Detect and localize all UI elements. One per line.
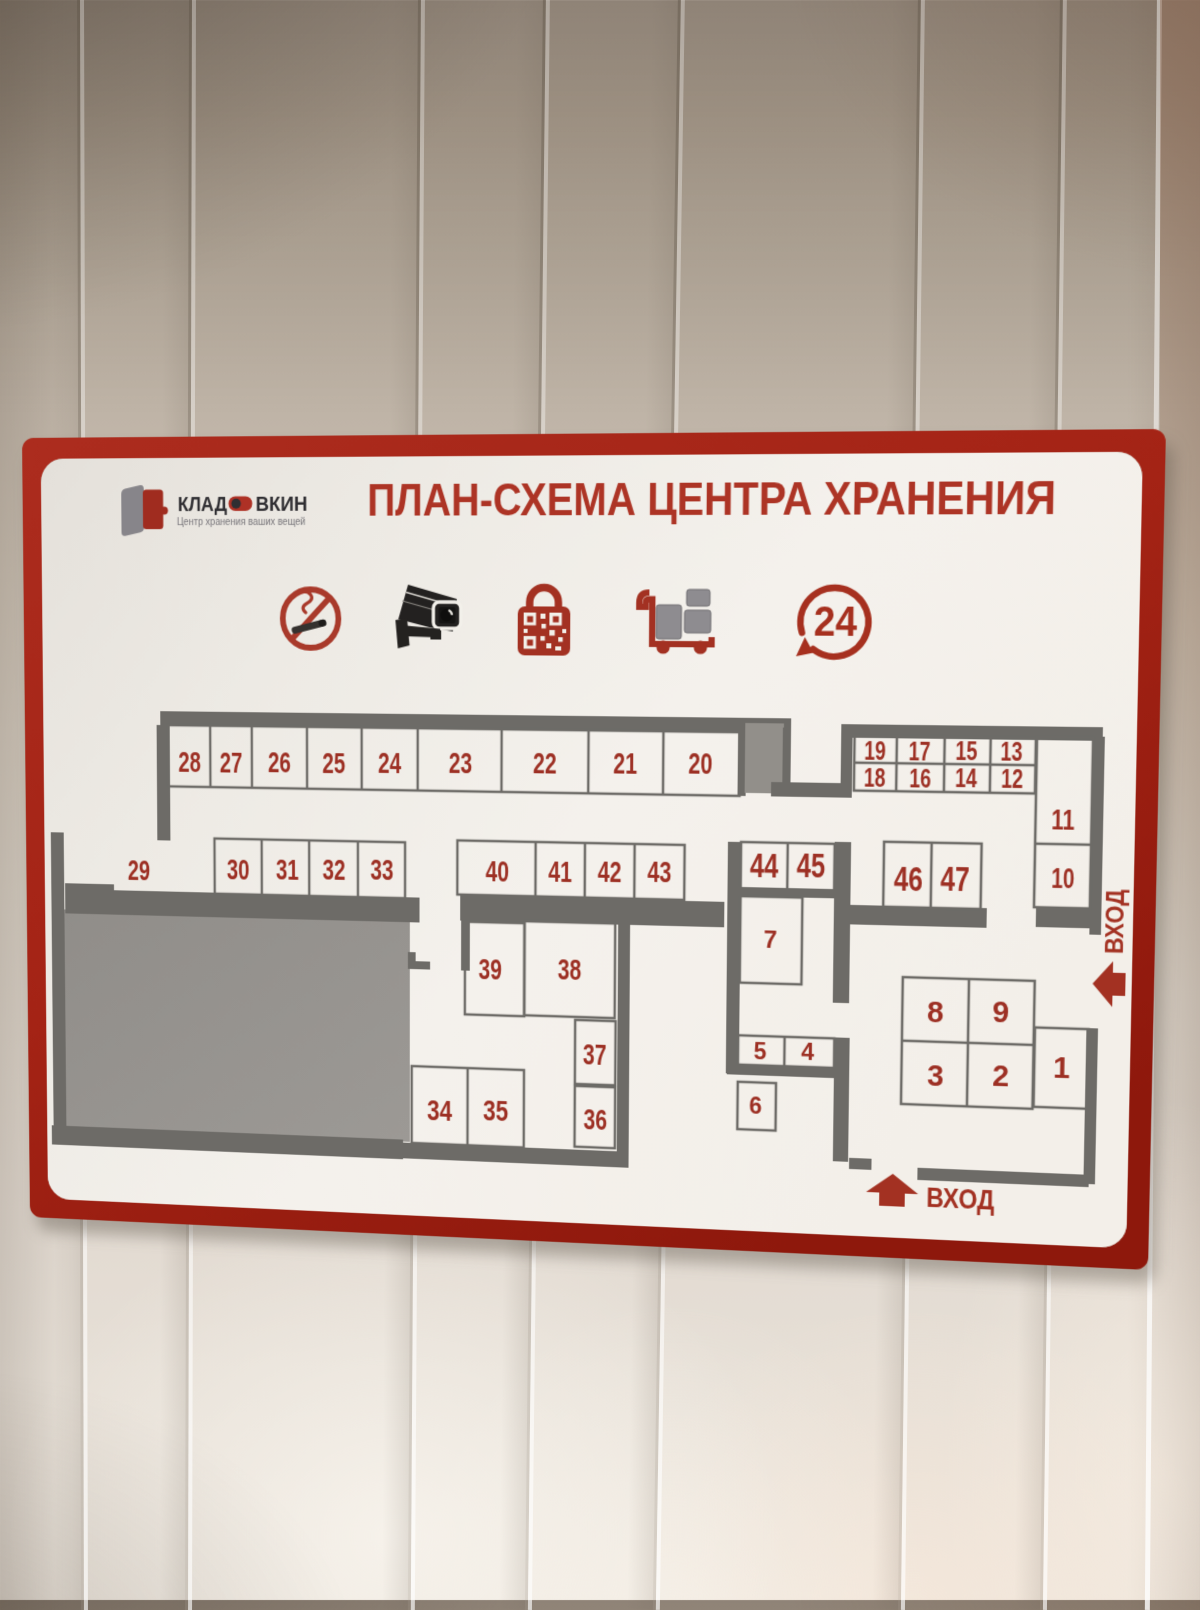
svg-text:10: 10 xyxy=(1051,861,1075,895)
svg-text:1: 1 xyxy=(1053,1051,1071,1085)
svg-text:29: 29 xyxy=(128,855,151,887)
svg-text:12: 12 xyxy=(1001,764,1024,795)
svg-text:13: 13 xyxy=(1000,737,1023,768)
svg-text:24: 24 xyxy=(378,747,401,779)
svg-text:22: 22 xyxy=(533,747,557,780)
svg-text:30: 30 xyxy=(227,854,250,886)
svg-text:2: 2 xyxy=(992,1059,1009,1093)
svg-text:23: 23 xyxy=(449,747,472,780)
svg-text:19: 19 xyxy=(864,736,886,766)
svg-text:47: 47 xyxy=(940,859,970,898)
svg-text:5: 5 xyxy=(754,1038,767,1065)
svg-text:40: 40 xyxy=(486,855,510,888)
svg-text:41: 41 xyxy=(548,856,572,889)
svg-text:46: 46 xyxy=(894,860,923,899)
svg-text:17: 17 xyxy=(908,737,930,767)
svg-text:37: 37 xyxy=(583,1038,607,1071)
svg-text:43: 43 xyxy=(647,856,671,889)
svg-text:38: 38 xyxy=(558,953,582,986)
svg-text:14: 14 xyxy=(955,763,977,794)
svg-text:32: 32 xyxy=(323,854,346,886)
svg-text:КЛАД: КЛАД xyxy=(178,493,228,516)
svg-text:6: 6 xyxy=(749,1093,762,1120)
svg-text:34: 34 xyxy=(427,1094,452,1127)
svg-text:4: 4 xyxy=(801,1039,815,1066)
svg-text:39: 39 xyxy=(478,953,501,986)
svg-text:18: 18 xyxy=(864,763,886,793)
svg-text:3: 3 xyxy=(927,1059,944,1092)
svg-text:ПЛАН-СХЕМА ЦЕНТРА ХРАНЕНИЯ: ПЛАН-СХЕМА ЦЕНТРА ХРАНЕНИЯ xyxy=(367,472,1056,526)
svg-text:21: 21 xyxy=(613,747,637,780)
svg-text:8: 8 xyxy=(927,995,944,1028)
svg-text:15: 15 xyxy=(955,736,977,767)
svg-text:ВХОД: ВХОД xyxy=(926,1182,995,1217)
svg-text:33: 33 xyxy=(370,854,393,886)
svg-text:25: 25 xyxy=(322,747,345,779)
svg-text:20: 20 xyxy=(688,747,712,780)
svg-text:ВХОД: ВХОД xyxy=(1100,888,1130,954)
svg-text:44: 44 xyxy=(750,846,779,885)
svg-text:45: 45 xyxy=(796,846,825,885)
svg-text:24: 24 xyxy=(814,599,858,646)
svg-text:35: 35 xyxy=(483,1095,508,1128)
svg-text:27: 27 xyxy=(220,747,243,779)
svg-text:26: 26 xyxy=(268,746,291,778)
svg-text:ВКИН: ВКИН xyxy=(256,493,308,516)
svg-text:9: 9 xyxy=(992,995,1009,1029)
svg-text:Центр хранения ваших вещей: Центр хранения ваших вещей xyxy=(177,515,306,528)
svg-text:36: 36 xyxy=(583,1103,607,1136)
svg-text:28: 28 xyxy=(178,746,201,778)
svg-text:11: 11 xyxy=(1051,802,1075,836)
svg-text:42: 42 xyxy=(598,856,622,889)
svg-text:7: 7 xyxy=(764,926,778,954)
svg-text:31: 31 xyxy=(276,854,299,886)
svg-text:16: 16 xyxy=(909,764,931,794)
